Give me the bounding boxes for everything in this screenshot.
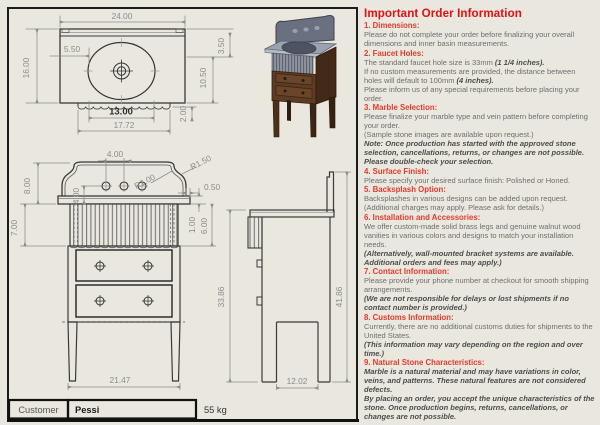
section-heading: 6. Installation and Accessories: (364, 213, 595, 222)
info-panel-title: Important Order Information (364, 7, 595, 20)
customer-label: Customer (18, 405, 58, 415)
product-render (265, 16, 336, 137)
section-paragraph: By placing an order, you accept the uniq… (364, 394, 595, 421)
order-info-sections: 1. Dimensions:Please do not complete you… (364, 21, 595, 421)
dim-label: 16.00 (21, 57, 31, 78)
section-heading: 9. Natural Stone Characteristics: (364, 358, 595, 367)
section-paragraph: Currently, there are no additional custo… (364, 322, 595, 340)
section-paragraph: (Additional charges may apply. Please as… (364, 203, 595, 212)
dim-label: 13.00 (109, 107, 133, 118)
front-view: 4.00 4.00 R1.00 R1.50 0.50 1.00 6.00 8.0… (9, 149, 221, 390)
dim-label: 24.00 (112, 11, 133, 21)
dim-label: 8.00 (22, 178, 32, 195)
section-heading: 1. Dimensions: (364, 21, 595, 30)
dim-label: 10.50 (198, 67, 208, 88)
dim-label: 33.86 (216, 286, 226, 307)
dim-label: 3.50 (216, 38, 226, 55)
customer-value: Pessi (75, 405, 99, 415)
section-heading: 2. Faucet Holes: (364, 49, 595, 58)
section-paragraph: Please do not complete your order before… (364, 30, 595, 48)
dim-label: R1.50 (189, 153, 214, 172)
section-paragraph: Note: Once production has started with t… (364, 139, 595, 166)
top-view: 24.00 16.00 5.50 13.00 17.72 2.00 10.50 … (21, 11, 233, 134)
section-paragraph: (This information may vary depending on … (364, 340, 595, 358)
section-heading: 4. Surface Finish: (364, 167, 595, 176)
section-paragraph: Please finalize your marble type and vei… (364, 112, 595, 130)
dim-label: 4.00 (71, 188, 81, 205)
dim-label: 17.72 (114, 120, 135, 130)
section-paragraph: (Sample stone images are available upon … (364, 130, 595, 139)
order-info-panel: Important Order Information 1. Dimension… (364, 7, 595, 421)
dim-label: 0.50 (204, 182, 221, 192)
dim-label: 2.00 (178, 106, 188, 123)
side-view: 33.86 41.86 12.02 (216, 172, 351, 390)
section-paragraph: The standard faucet hole size is 33mm (1… (364, 58, 595, 67)
dim-label: 12.02 (287, 376, 308, 386)
section-paragraph: Please inform us of any special requirem… (364, 85, 595, 103)
dim-label: 4.00 (107, 149, 124, 159)
section-paragraph: Marble is a natural material and may hav… (364, 367, 595, 394)
dim-label: R1.00 (133, 172, 158, 191)
section-paragraph: If no custom measurements are provided, … (364, 67, 595, 85)
dim-label: 7.00 (9, 220, 19, 237)
section-paragraph: Please provide your phone number at chec… (364, 276, 595, 294)
drawer-knobs (94, 260, 154, 307)
dim-label: 6.00 (199, 218, 209, 235)
drain-icon (111, 60, 133, 82)
section-heading: 3. Marble Selection: (364, 103, 595, 112)
title-block: Customer Pessi 55 kg (9, 400, 227, 419)
section-paragraph: We offer custom-made solid brass legs an… (364, 222, 595, 249)
section-paragraph: Please specify your desired surface fini… (364, 176, 595, 185)
drawing-sheet: 24.00 16.00 5.50 13.00 17.72 2.00 10.50 … (0, 0, 600, 425)
weight-value: 55 kg (204, 405, 227, 415)
section-heading: 8. Customs Information: (364, 313, 595, 322)
section-paragraph: Backsplashes in various designs can be a… (364, 194, 595, 203)
dim-label: 1.00 (187, 217, 197, 234)
section-paragraph: (We are not responsible for delays or lo… (364, 294, 595, 312)
section-paragraph: (Alternatively, wall-mounted bracket sys… (364, 249, 595, 267)
dim-label: 21.47 (110, 375, 131, 385)
dim-label: 5.50 (64, 44, 81, 54)
section-heading: 5. Backsplash Option: (364, 185, 595, 194)
dim-label: 41.86 (334, 286, 344, 307)
section-heading: 7. Contact Information: (364, 267, 595, 276)
